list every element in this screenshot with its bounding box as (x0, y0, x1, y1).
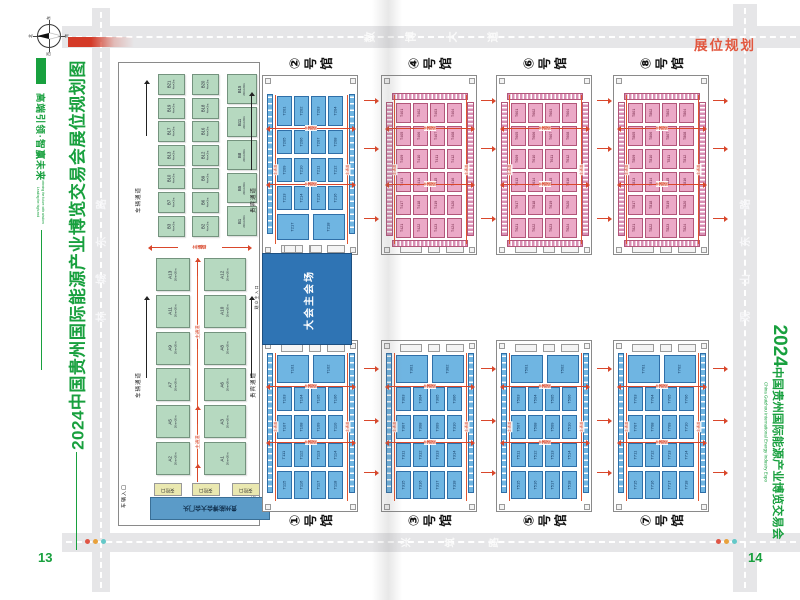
hall-link-arrow (481, 368, 492, 369)
hall-link-arrow (364, 148, 375, 149)
hall-link-arrow (364, 420, 375, 421)
hall-link-arrow (713, 472, 724, 473)
compass-south-label: 南 (64, 34, 70, 38)
compass-north-label: 北 (28, 34, 34, 38)
hall-link-arrow (481, 420, 492, 421)
hall-link-arrow (713, 218, 724, 219)
hall-link-arrow (597, 100, 608, 101)
traffic-dot (93, 539, 98, 544)
hall-link-arrow (364, 472, 375, 473)
hall-link-arrow (597, 218, 608, 219)
road-name-right: 观山东路 (738, 172, 753, 322)
road-name-top: 数博大道 (364, 27, 498, 47)
compass-east-label: 东 (46, 16, 52, 20)
hall-link-arrow (713, 148, 724, 149)
hall-link-arrow (364, 218, 375, 219)
hall-link-arrow (597, 420, 608, 421)
road-name-bottom: 兴筑路 (400, 535, 498, 550)
traffic-dot (85, 539, 90, 544)
venue-structure (310, 245, 322, 253)
traffic-dot (732, 539, 737, 544)
hall-link-arrow (481, 148, 492, 149)
traffic-dot (724, 539, 729, 544)
brochure-page-spread: 数博大道 兴筑路 林城东路 观山东路 展位规划 北 南 东 西 2024中国贵州… (0, 0, 800, 600)
hall-link-arrow (713, 100, 724, 101)
highlight-bar (68, 37, 134, 47)
compass-icon: 北 南 东 西 (33, 20, 65, 52)
traffic-dot (716, 539, 721, 544)
main-venue: 大会主会场 (262, 253, 352, 345)
hall-link-arrow (481, 218, 492, 219)
hall-link-arrow (597, 368, 608, 369)
main-venue-label: 大会主会场 (301, 270, 316, 330)
traffic-dot (101, 539, 106, 544)
road-name-left: 林城东路 (94, 172, 109, 322)
compass-west-label: 西 (46, 52, 52, 56)
map-decorations (0, 0, 800, 600)
hall-link-arrow (481, 472, 492, 473)
hall-link-arrow (364, 100, 375, 101)
hall-link-arrow (597, 148, 608, 149)
hall-link-arrow (481, 100, 492, 101)
hall-link-arrow (713, 420, 724, 421)
hall-link-arrow (597, 472, 608, 473)
page-header-planning-label: 展位规划 (694, 34, 756, 54)
hall-link-arrow (364, 368, 375, 369)
venue-structure (284, 245, 296, 253)
hall-link-arrow (713, 368, 724, 369)
